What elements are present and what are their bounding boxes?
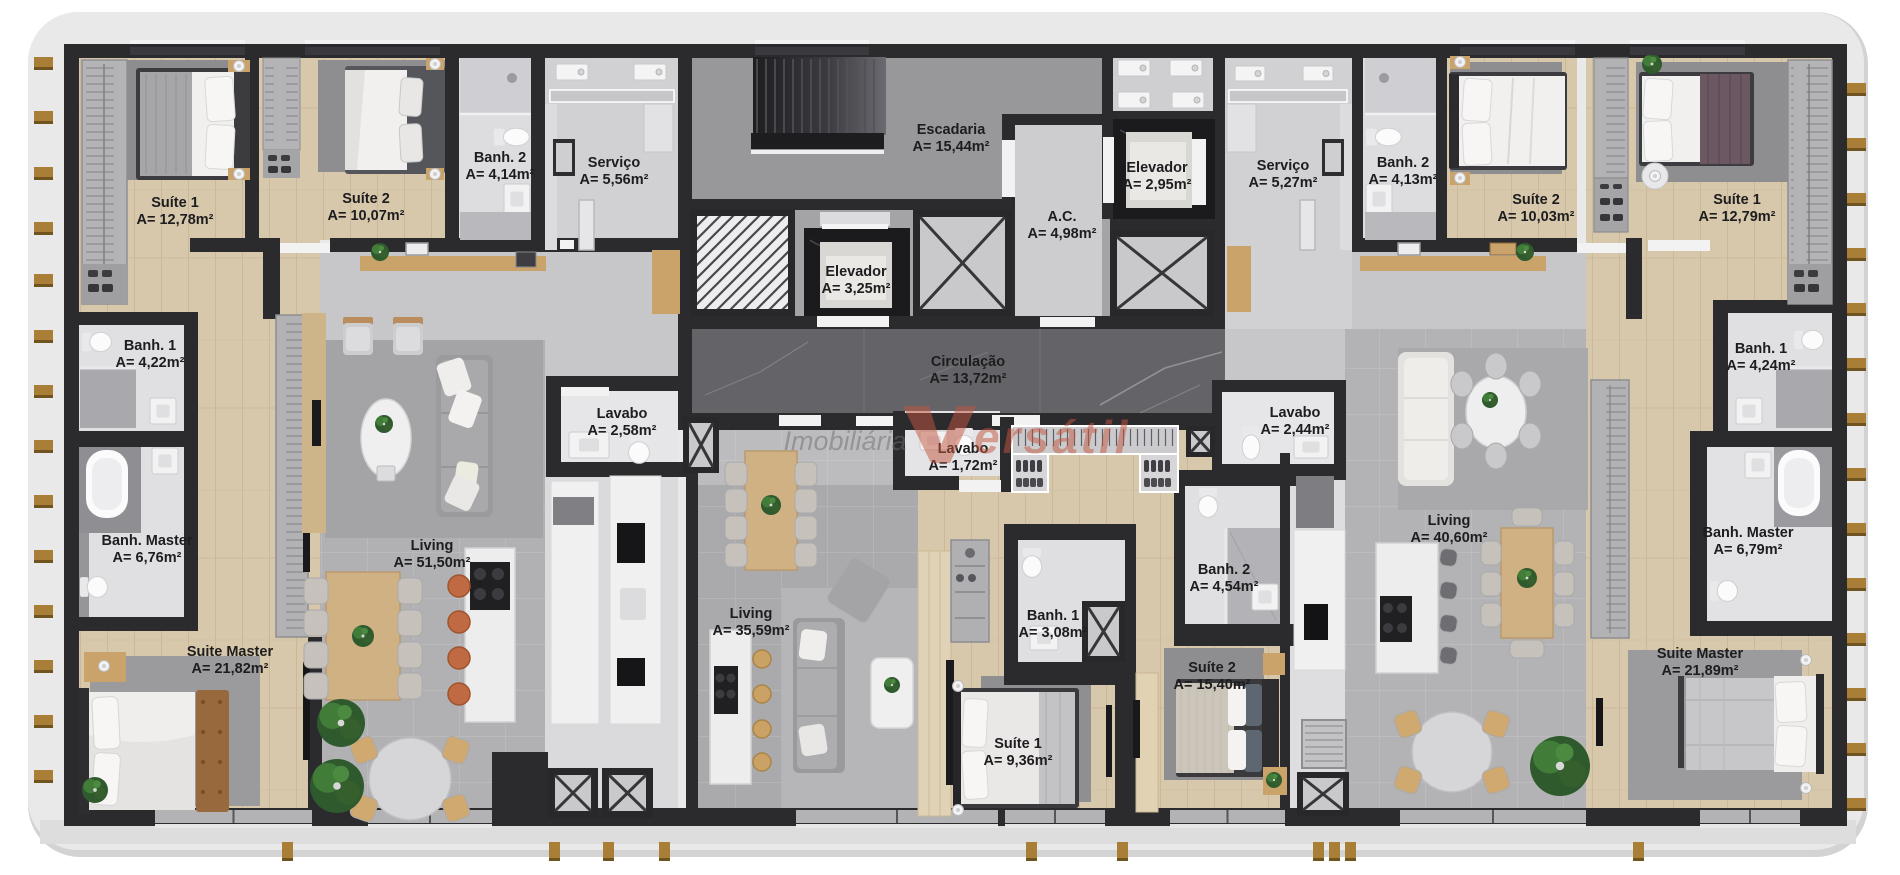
svg-text:Elevador: Elevador (1126, 160, 1188, 176)
svg-text:Banh. 2: Banh. 2 (474, 150, 526, 166)
svg-text:Lavabo: Lavabo (1270, 405, 1321, 421)
svg-text:Imobiliária: Imobiliária (783, 426, 906, 456)
svg-text:Banh. 1: Banh. 1 (1027, 608, 1079, 624)
svg-text:Banh. 1: Banh. 1 (1735, 341, 1787, 357)
svg-text:Suite Master: Suite Master (187, 644, 274, 660)
svg-text:A= 4,24m²: A= 4,24m² (1727, 358, 1796, 374)
svg-text:A= 51,50m²: A= 51,50m² (394, 555, 471, 571)
svg-text:Serviço: Serviço (588, 155, 641, 171)
svg-text:A= 9,36m²: A= 9,36m² (984, 753, 1053, 769)
svg-text:Banh. 2: Banh. 2 (1377, 155, 1429, 171)
svg-text:Suíte 2: Suíte 2 (1188, 660, 1236, 676)
svg-text:A= 2,58m²: A= 2,58m² (588, 423, 657, 439)
svg-text:Suite Master: Suite Master (1657, 646, 1744, 662)
svg-text:A= 4,54m²: A= 4,54m² (1190, 579, 1259, 595)
svg-text:A= 2,44m²: A= 2,44m² (1261, 422, 1330, 438)
svg-text:A= 10,03m²: A= 10,03m² (1498, 209, 1575, 225)
svg-text:Living: Living (411, 538, 454, 554)
svg-text:A= 21,82m²: A= 21,82m² (192, 661, 269, 677)
svg-text:A= 13,72m²: A= 13,72m² (930, 371, 1007, 387)
svg-text:Banh. Master: Banh. Master (101, 533, 192, 549)
svg-text:A= 3,25m²: A= 3,25m² (822, 281, 891, 297)
svg-text:A= 2,95m²: A= 2,95m² (1123, 177, 1192, 193)
svg-text:A= 15,40m²: A= 15,40m² (1174, 677, 1251, 693)
svg-text:A= 4,14m²: A= 4,14m² (466, 167, 535, 183)
svg-text:Banh. Master: Banh. Master (1702, 525, 1793, 541)
svg-text:Suíte 1: Suíte 1 (994, 736, 1042, 752)
svg-text:Suíte 2: Suíte 2 (1512, 192, 1560, 208)
svg-text:A= 40,60m²: A= 40,60m² (1411, 530, 1488, 546)
svg-text:A= 5,27m²: A= 5,27m² (1249, 175, 1318, 191)
svg-text:A= 35,59m²: A= 35,59m² (713, 623, 790, 639)
svg-text:A= 4,22m²: A= 4,22m² (116, 355, 185, 371)
svg-text:A= 12,79m²: A= 12,79m² (1699, 209, 1776, 225)
svg-text:A= 4,13m²: A= 4,13m² (1369, 172, 1438, 188)
svg-text:Elevador: Elevador (825, 264, 887, 280)
svg-text:Living: Living (1428, 513, 1471, 529)
svg-text:A= 6,79m²: A= 6,79m² (1714, 542, 1783, 558)
svg-text:Serviço: Serviço (1257, 158, 1310, 174)
svg-text:A.C.: A.C. (1048, 209, 1077, 225)
svg-text:Banh. 1: Banh. 1 (124, 338, 176, 354)
svg-text:A= 21,89m²: A= 21,89m² (1662, 663, 1739, 679)
svg-text:Living: Living (730, 606, 773, 622)
svg-text:Circulação: Circulação (931, 354, 1005, 370)
svg-text:Suíte 1: Suíte 1 (1713, 192, 1761, 208)
svg-text:A= 6,76m²: A= 6,76m² (113, 550, 182, 566)
svg-text:ersátil: ersátil (974, 411, 1131, 463)
svg-text:A= 12,78m²: A= 12,78m² (137, 212, 214, 228)
svg-text:A= 3,08m²: A= 3,08m² (1019, 625, 1088, 641)
svg-text:Suíte 1: Suíte 1 (151, 195, 199, 211)
svg-text:Banh. 2: Banh. 2 (1198, 562, 1250, 578)
svg-text:Lavabo: Lavabo (597, 406, 648, 422)
svg-text:A= 15,44m²: A= 15,44m² (913, 139, 990, 155)
svg-text:Suíte 2: Suíte 2 (342, 191, 390, 207)
svg-text:A= 4,98m²: A= 4,98m² (1028, 226, 1097, 242)
svg-text:Escadaria: Escadaria (917, 122, 986, 138)
svg-text:A= 10,07m²: A= 10,07m² (328, 208, 405, 224)
svg-text:A= 5,56m²: A= 5,56m² (580, 172, 649, 188)
